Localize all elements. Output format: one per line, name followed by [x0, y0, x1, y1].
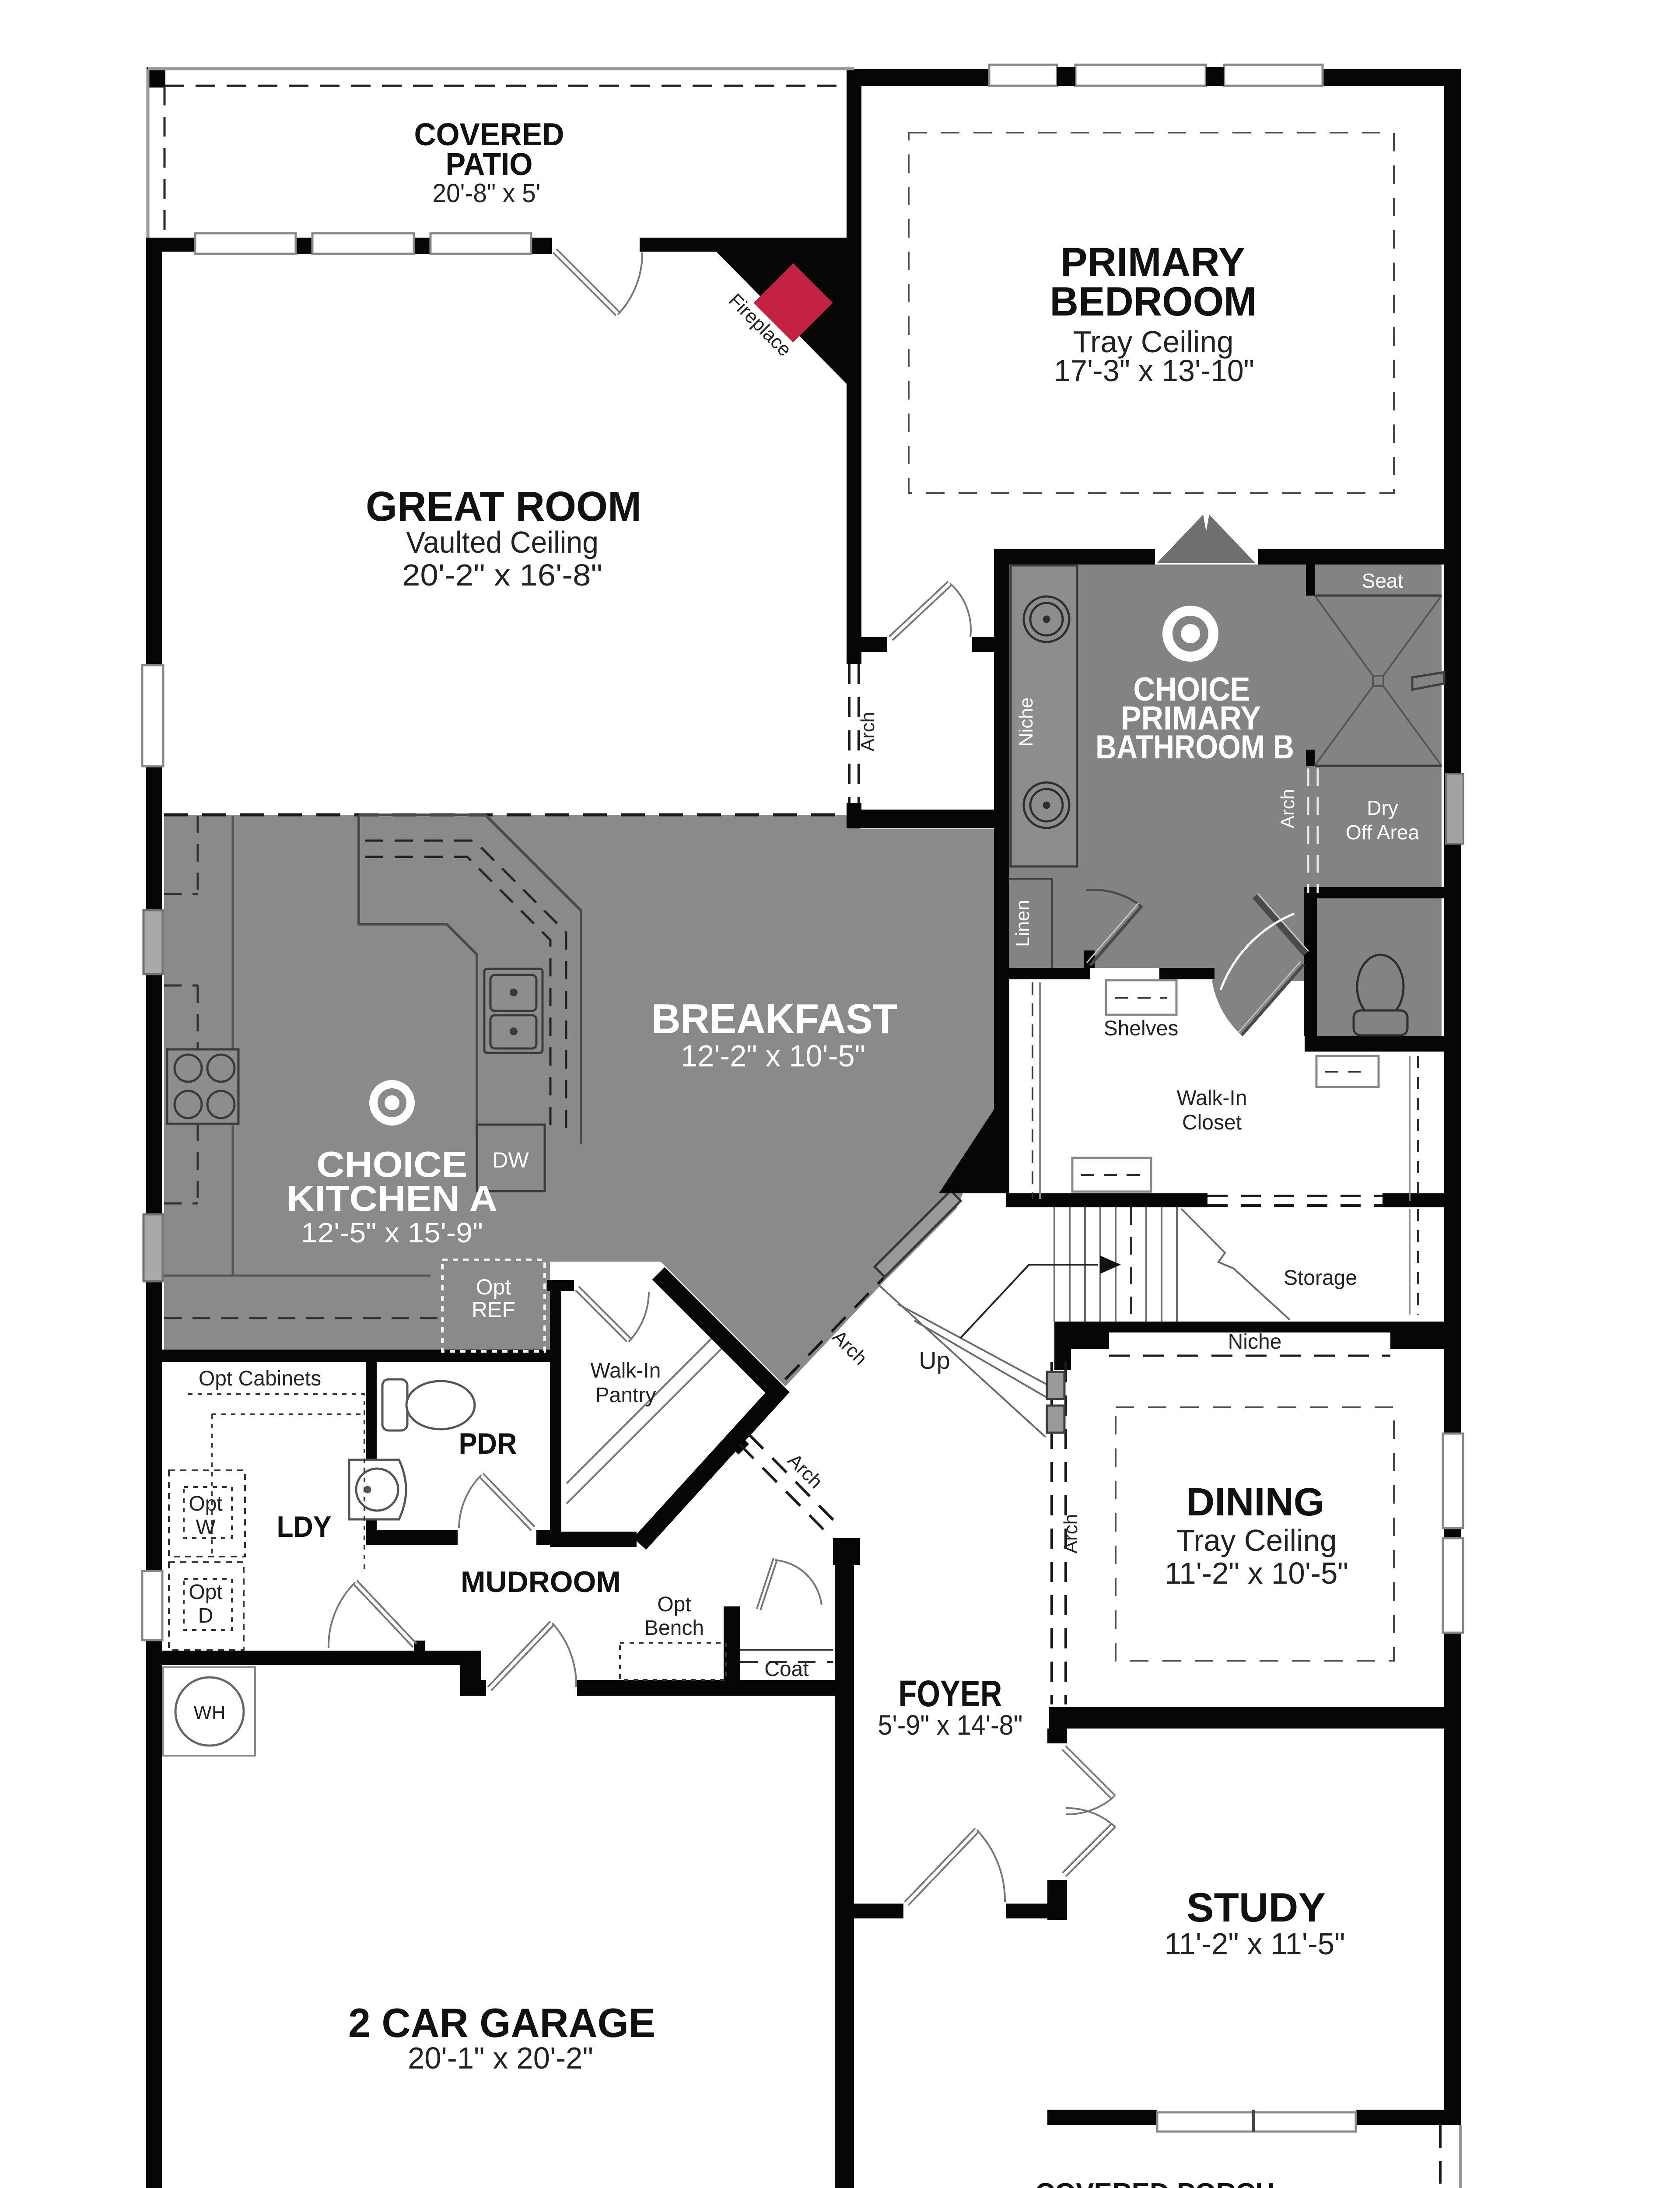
svg-text:BATHROOM B: BATHROOM B	[1095, 729, 1294, 766]
svg-text:FOYER: FOYER	[899, 1673, 1002, 1714]
svg-text:WH: WH	[193, 1702, 225, 1723]
svg-text:Linen: Linen	[1012, 900, 1033, 947]
svg-text:Niche: Niche	[1228, 1330, 1282, 1353]
svg-text:DINING: DINING	[1186, 1480, 1324, 1524]
svg-text:20'-1" x 20'-2": 20'-1" x 20'-2"	[408, 2041, 593, 2075]
svg-text:Shelves: Shelves	[1104, 1017, 1179, 1040]
svg-text:REF: REF	[472, 1297, 515, 1322]
svg-text:17'-3" x 13'-10": 17'-3" x 13'-10"	[1054, 354, 1254, 388]
svg-text:Vaulted Ceiling: Vaulted Ceiling	[406, 525, 598, 559]
svg-text:12'-5" x 15'-9": 12'-5" x 15'-9"	[301, 1217, 483, 1248]
svg-text:PATIO: PATIO	[446, 147, 533, 182]
svg-text:STUDY: STUDY	[1186, 1884, 1326, 1930]
svg-text:Arch: Arch	[1277, 789, 1298, 828]
svg-text:KITCHEN A: KITCHEN A	[287, 1178, 497, 1219]
svg-text:11'-2" x 11'-5": 11'-2" x 11'-5"	[1165, 1927, 1345, 1961]
svg-text:BREAKFAST: BREAKFAST	[651, 996, 897, 1042]
svg-text:Opt: Opt	[476, 1275, 511, 1299]
svg-text:Off Area: Off Area	[1346, 821, 1419, 844]
svg-text:Walk-In: Walk-In	[1177, 1087, 1247, 1110]
svg-text:Opt: Opt	[189, 1492, 222, 1515]
svg-text:Closet: Closet	[1182, 1111, 1242, 1134]
svg-text:PDR: PDR	[459, 1427, 517, 1460]
svg-text:Up: Up	[919, 1346, 950, 1374]
svg-text:DW: DW	[492, 1148, 529, 1172]
svg-text:Arch: Arch	[857, 712, 878, 751]
svg-text:Pantry: Pantry	[595, 1384, 656, 1407]
svg-text:Storage: Storage	[1284, 1266, 1357, 1290]
svg-text:COVERED PORCH: COVERED PORCH	[1035, 2178, 1275, 2188]
svg-text:20'-2" x 16'-8": 20'-2" x 16'-8"	[402, 558, 602, 592]
svg-text:Niche: Niche	[1015, 698, 1037, 747]
svg-text:Walk-In: Walk-In	[591, 1359, 661, 1382]
svg-text:LDY: LDY	[277, 1510, 332, 1543]
svg-text:11'-2" x 10'-5": 11'-2" x 10'-5"	[1165, 1556, 1348, 1590]
svg-text:2 CAR GARAGE: 2 CAR GARAGE	[348, 2000, 655, 2046]
svg-text:Tray Ceiling: Tray Ceiling	[1176, 1523, 1337, 1557]
svg-text:Opt: Opt	[189, 1581, 222, 1604]
svg-text:Dry: Dry	[1367, 796, 1398, 819]
svg-text:BEDROOM: BEDROOM	[1050, 278, 1257, 324]
svg-text:Coat: Coat	[764, 1658, 808, 1681]
svg-text:MUDROOM: MUDROOM	[461, 1565, 621, 1599]
svg-text:Opt: Opt	[657, 1593, 691, 1616]
svg-text:Arch: Arch	[1060, 1514, 1081, 1553]
svg-text:5'-9" x 14'-8": 5'-9" x 14'-8"	[878, 1709, 1023, 1741]
svg-text:20'-8" x 5': 20'-8" x 5'	[433, 179, 541, 208]
svg-text:Bench: Bench	[644, 1616, 704, 1640]
svg-text:Seat: Seat	[1362, 569, 1403, 592]
svg-text:W: W	[196, 1516, 216, 1539]
svg-text:12'-2" x 10'-5": 12'-2" x 10'-5"	[681, 1039, 865, 1073]
svg-text:D: D	[198, 1604, 213, 1627]
svg-text:GREAT ROOM: GREAT ROOM	[366, 483, 641, 530]
svg-text:Opt Cabinets: Opt Cabinets	[199, 1367, 321, 1390]
